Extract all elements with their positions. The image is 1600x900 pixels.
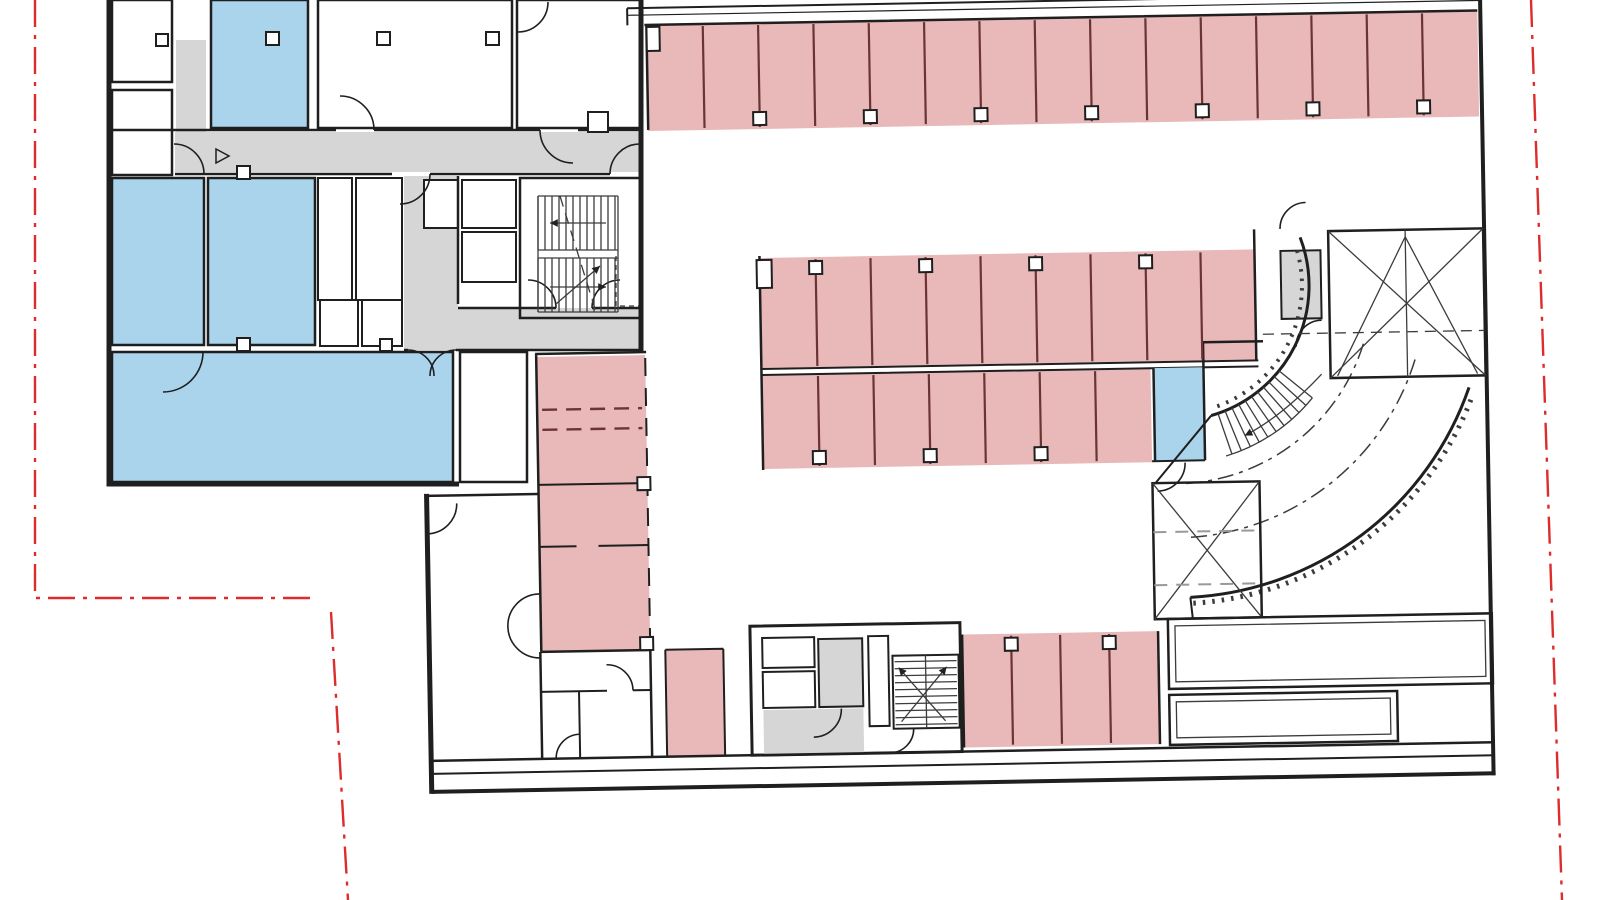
room-stair-side-b bbox=[462, 180, 516, 228]
ramp-outer-wall bbox=[1187, 387, 1473, 597]
stair-tread bbox=[1225, 411, 1241, 451]
boundary-line-southwest bbox=[331, 612, 348, 900]
stair-tread bbox=[1239, 404, 1260, 442]
garage-north-outer-wall bbox=[627, 0, 1482, 8]
column bbox=[266, 32, 279, 45]
column bbox=[486, 32, 499, 45]
floor-plan bbox=[0, 0, 1600, 900]
room-mid-b bbox=[356, 178, 402, 300]
column bbox=[237, 166, 250, 179]
garage-west-top-wall bbox=[427, 494, 538, 496]
column bbox=[377, 32, 390, 45]
stair-tread bbox=[1218, 413, 1232, 454]
column bbox=[1005, 638, 1018, 651]
stair-tread bbox=[1245, 400, 1268, 437]
column bbox=[380, 339, 392, 351]
column bbox=[237, 338, 250, 351]
column bbox=[1196, 104, 1209, 117]
stair-tread bbox=[1232, 407, 1250, 446]
column bbox=[864, 110, 877, 123]
column bbox=[1139, 255, 1152, 268]
column bbox=[753, 112, 766, 125]
stair-tread bbox=[1279, 370, 1312, 398]
room-mid-a bbox=[318, 178, 352, 300]
column bbox=[156, 34, 168, 46]
utility-rooms-southeast bbox=[1168, 613, 1494, 745]
room-south-white bbox=[460, 352, 527, 482]
corridor-stub bbox=[176, 40, 206, 132]
vestibule-rooms bbox=[540, 650, 652, 759]
column bbox=[919, 259, 932, 272]
blue-room-north bbox=[211, 0, 308, 128]
stall-divider bbox=[1095, 371, 1097, 461]
blue-room-west-a bbox=[112, 178, 204, 345]
column bbox=[974, 108, 987, 121]
garage-west-outer-wall bbox=[427, 494, 432, 794]
room-mid-c bbox=[320, 300, 358, 346]
room-stair-side-c bbox=[462, 232, 516, 282]
column bbox=[1417, 100, 1430, 113]
room-north-east bbox=[517, 0, 641, 128]
column bbox=[1085, 106, 1098, 119]
column bbox=[809, 261, 822, 274]
stair-tread bbox=[1258, 391, 1285, 426]
blue-stall bbox=[1153, 367, 1205, 461]
room-nw-b bbox=[112, 90, 172, 175]
parking-row-top bbox=[644, 10, 1479, 131]
boundary-line-east bbox=[1531, 0, 1562, 900]
corridor-south bbox=[404, 308, 641, 350]
ramp-box-lower bbox=[1152, 481, 1261, 619]
column bbox=[1029, 257, 1042, 270]
stall-divider bbox=[984, 373, 986, 463]
room-north-large bbox=[318, 0, 512, 128]
column bbox=[1306, 102, 1319, 115]
single-parking-stall bbox=[665, 649, 725, 757]
floor-plan-canvas bbox=[0, 0, 1600, 900]
stair-tread bbox=[1251, 396, 1276, 432]
column bbox=[1034, 447, 1047, 460]
office-stair bbox=[520, 178, 641, 318]
column bbox=[813, 451, 826, 464]
column bbox=[588, 112, 608, 132]
room-stair-side-a bbox=[424, 180, 458, 228]
column bbox=[1103, 636, 1116, 649]
blue-room-west-b bbox=[208, 178, 315, 345]
stair-core-south bbox=[750, 623, 962, 756]
blue-room-large-south bbox=[112, 352, 453, 482]
parking-row-middle-upper bbox=[760, 249, 1257, 368]
stall-divider bbox=[873, 375, 875, 465]
column bbox=[924, 449, 937, 462]
fan-stair bbox=[1217, 370, 1323, 456]
